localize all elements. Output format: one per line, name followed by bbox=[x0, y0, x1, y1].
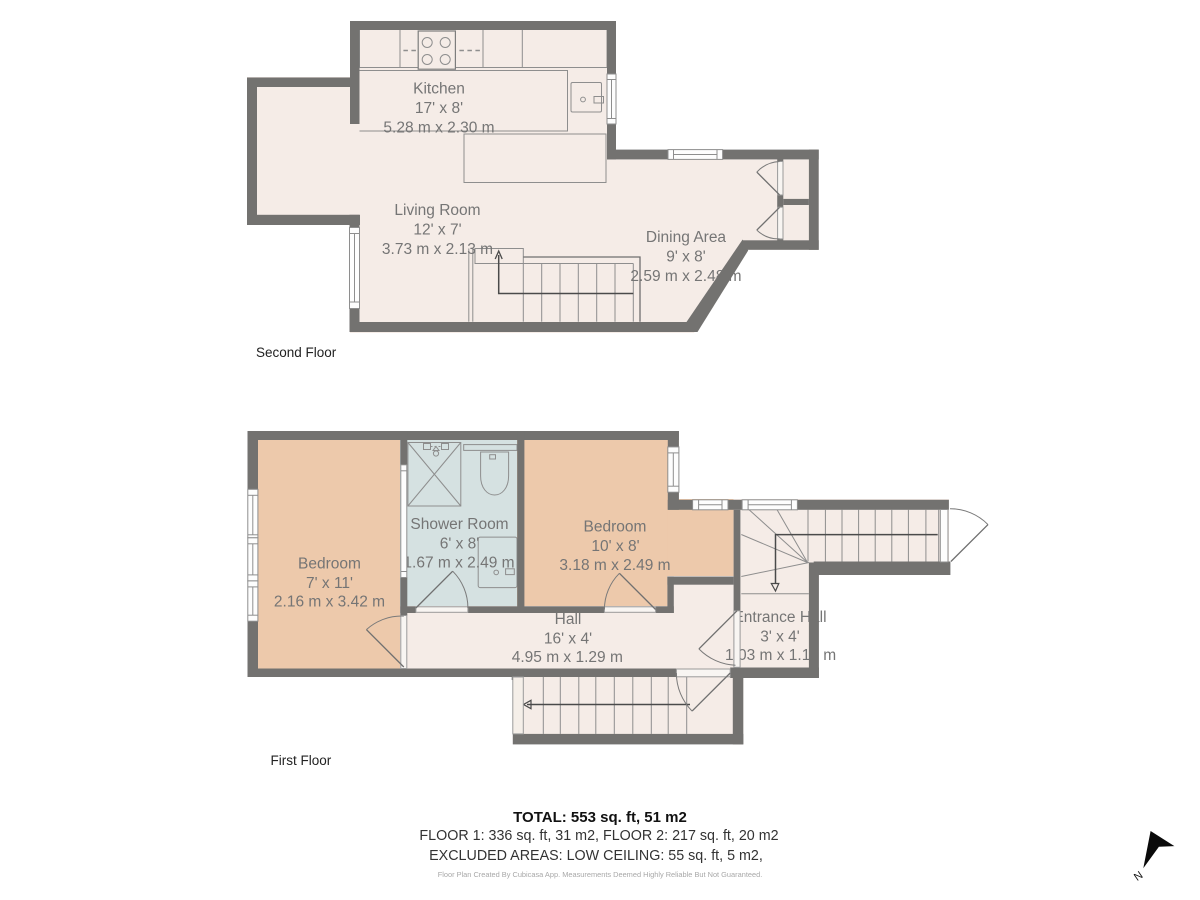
svg-text:Floor Plan Created By Cubicasa: Floor Plan Created By Cubicasa App. Meas… bbox=[438, 870, 763, 879]
svg-text:2.16 m x 3.42 m: 2.16 m x 3.42 m bbox=[274, 594, 385, 611]
svg-text:3.18 m x 2.49 m: 3.18 m x 2.49 m bbox=[559, 557, 670, 574]
svg-text:Dining Area: Dining Area bbox=[646, 229, 727, 246]
svg-text:Kitchen: Kitchen bbox=[413, 81, 465, 98]
svg-text:Living Room: Living Room bbox=[394, 202, 480, 219]
svg-text:6' x 8': 6' x 8' bbox=[440, 535, 480, 552]
svg-text:Shower Room: Shower Room bbox=[410, 516, 508, 533]
svg-text:Bedroom: Bedroom bbox=[298, 556, 361, 573]
svg-text:3.73 m x 2.13 m: 3.73 m x 2.13 m bbox=[382, 241, 493, 258]
svg-text:16' x 4': 16' x 4' bbox=[544, 630, 592, 647]
svg-text:Hall: Hall bbox=[555, 611, 582, 628]
svg-text:7' x 11': 7' x 11' bbox=[306, 575, 353, 592]
svg-text:Bedroom: Bedroom bbox=[584, 519, 647, 536]
svg-text:1.03 m x 1.19 m: 1.03 m x 1.19 m bbox=[725, 647, 836, 664]
svg-text:5.28 m x 2.30 m: 5.28 m x 2.30 m bbox=[383, 119, 494, 136]
svg-text:EXCLUDED AREAS: LOW CEILING: 5: EXCLUDED AREAS: LOW CEILING: 55 sq. ft, … bbox=[429, 848, 763, 864]
svg-text:17' x 8': 17' x 8' bbox=[415, 100, 463, 117]
svg-text:First Floor: First Floor bbox=[271, 753, 332, 768]
svg-text:FLOOR 1: 336 sq. ft, 31 m2, FL: FLOOR 1: 336 sq. ft, 31 m2, FLOOR 2: 217… bbox=[419, 828, 778, 844]
svg-text:3' x 4': 3' x 4' bbox=[760, 628, 800, 645]
svg-text:10' x 8': 10' x 8' bbox=[591, 538, 639, 555]
svg-text:9' x 8': 9' x 8' bbox=[666, 248, 706, 265]
svg-text:Second Floor: Second Floor bbox=[256, 345, 337, 360]
svg-text:4.95 m x 1.29 m: 4.95 m x 1.29 m bbox=[512, 649, 623, 666]
svg-text:TOTAL: 553 sq. ft, 51 m2: TOTAL: 553 sq. ft, 51 m2 bbox=[513, 809, 687, 826]
svg-text:12' x 7': 12' x 7' bbox=[413, 222, 461, 239]
svg-text:1.67 m x 2.49 m: 1.67 m x 2.49 m bbox=[403, 555, 514, 572]
